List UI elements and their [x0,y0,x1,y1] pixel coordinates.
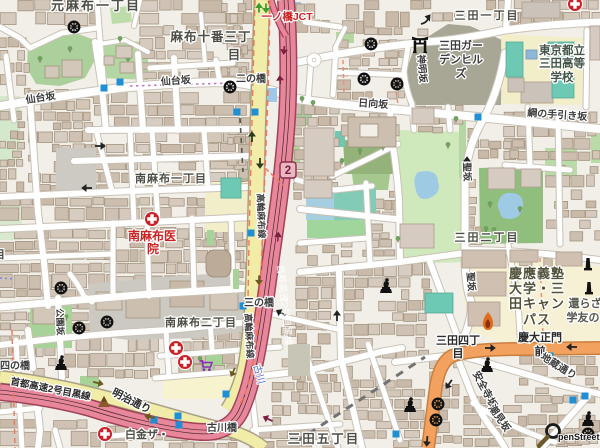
svg-text:田キャン: 田キャン [509,296,565,311]
svg-text:南麻布医: 南麻布医 [128,228,176,243]
svg-text:目: 目 [228,48,241,62]
svg-text:慶大正門: 慶大正門 [518,330,562,344]
svg-text:二の橋: 二の橋 [236,72,267,85]
svg-text:東京都立: 東京都立 [539,43,585,57]
svg-text:還らざ: 還らざ [569,296,600,310]
svg-text:2: 2 [285,165,291,177]
svg-text:三田一丁目: 三田一丁目 [455,9,520,22]
svg-text:高輪麻布線: 高輪麻布線 [255,193,268,238]
svg-text:三田二丁目: 三田二丁目 [455,231,520,244]
svg-text:三の橋: 三の橋 [244,296,275,309]
svg-text:penStreetMap: penStreetMap [558,432,600,442]
svg-text:パス: パス [523,312,551,327]
svg-text:神明坂: 神明坂 [415,54,429,84]
svg-text:デンヒル: デンヒル [439,52,483,66]
svg-text:院: 院 [147,241,159,256]
svg-text:慶應義塾: 慶應義塾 [509,266,565,281]
svg-text:ズ: ズ [456,66,467,80]
svg-text:丁目: 丁目 [0,248,5,261]
svg-text:白金ザ・: 白金ザ・ [125,427,169,441]
svg-text:古川橋: 古川橋 [207,421,238,434]
svg-text:南麻布二丁目: 南麻布二丁目 [165,315,237,329]
svg-text:三田ガー: 三田ガー [439,38,483,52]
svg-text:四の橋: 四の橋 [0,359,31,372]
svg-text:目: 目 [453,347,464,360]
svg-text:聖坂: 聖坂 [461,162,474,182]
svg-text:大学・三: 大学・三 [509,281,565,296]
svg-text:公園坂: 公園坂 [55,308,67,336]
svg-text:一ノ橋JCT: 一ノ橋JCT [261,10,313,23]
svg-text:南麻布一丁目: 南麻布一丁目 [135,171,207,185]
svg-text:麻布十番三丁: 麻布十番三丁 [169,29,251,44]
svg-text:三田高等: 三田高等 [539,56,585,70]
svg-text:三田五丁目: 三田五丁目 [288,432,361,446]
svg-text:学友の: 学友の [567,310,600,324]
svg-text:学校: 学校 [551,70,574,84]
svg-text:聖坂: 聖坂 [464,272,478,292]
svg-text:元麻布一丁目: 元麻布一丁目 [51,0,141,13]
svg-text:三田四丁: 三田四丁 [436,334,480,347]
